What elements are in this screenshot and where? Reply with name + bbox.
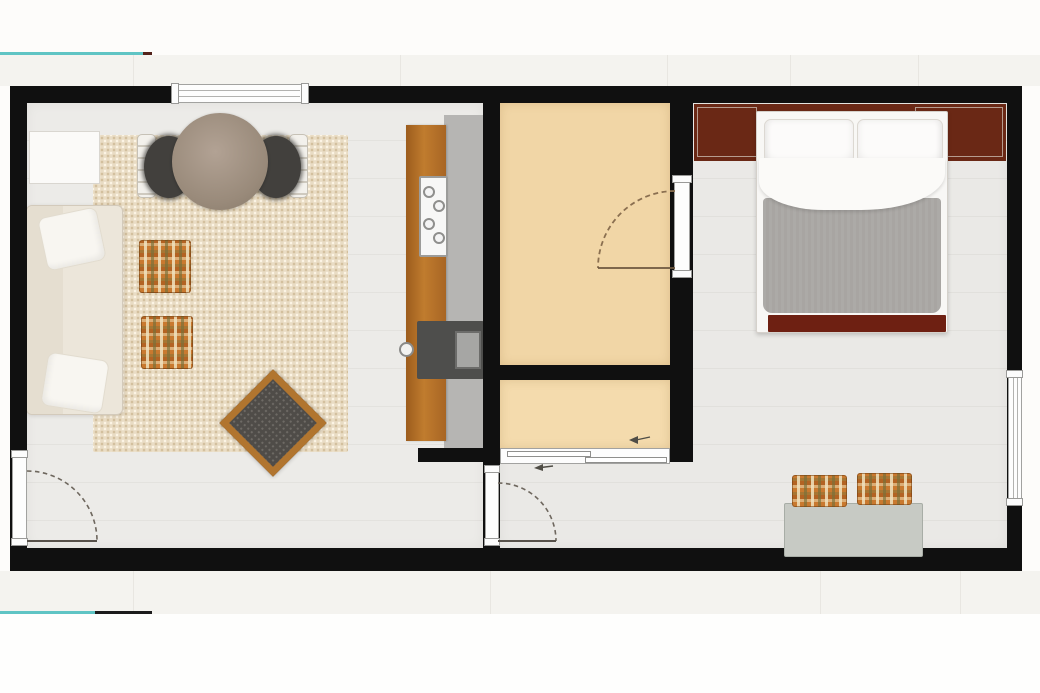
white-cabinet	[29, 131, 100, 184]
exterior-tile-band-bottom	[0, 571, 1040, 614]
burner-icon	[433, 200, 445, 212]
bed-footboard	[768, 315, 946, 332]
teal-accent-line-top-tip	[143, 52, 152, 55]
bed-blanket	[763, 198, 941, 313]
burner-icon	[423, 186, 435, 198]
exterior-tile-band-top	[0, 55, 1040, 86]
stove	[419, 176, 448, 257]
entry-door-frame-left-wall	[12, 453, 27, 545]
wall-top	[10, 86, 1022, 103]
hall-door-frame	[485, 468, 499, 545]
bench-cushion-left	[792, 475, 847, 507]
window-top-cap-right	[301, 83, 309, 104]
kitchen-wood-counter	[406, 125, 446, 441]
burner-icon	[423, 218, 435, 230]
teal-accent-line-bottom-tip	[95, 611, 152, 614]
burner-icon	[433, 232, 445, 244]
window-right-cap-bottom	[1006, 498, 1023, 506]
bathroom-door-frame	[674, 178, 690, 277]
window-right-cap-top	[1006, 370, 1023, 378]
window-top	[176, 84, 303, 103]
ottoman-2	[141, 316, 193, 369]
window-right	[1008, 374, 1022, 502]
dining-table	[172, 113, 268, 210]
teal-accent-line-top	[0, 52, 143, 55]
entry-door-cap-bottom	[11, 538, 28, 546]
entry-door-cap-top	[11, 450, 28, 458]
exterior-bottom-margin	[0, 614, 1040, 693]
wall-bathroom-closet	[483, 365, 693, 380]
bench-cushion-right	[857, 473, 912, 505]
window-top-cap-left	[171, 83, 179, 104]
bathroom-floor	[500, 103, 670, 365]
teal-accent-line-bottom	[0, 611, 95, 614]
sliding-panel-left	[507, 451, 591, 457]
bathroom-door-cap-bottom	[672, 270, 692, 278]
sink-basin	[455, 331, 481, 369]
wall-bathroom-bedroom	[670, 103, 693, 462]
hall-door-cap-bottom	[484, 538, 500, 546]
wardrobe-panel-left	[697, 107, 757, 157]
floor-plan-canvas	[0, 0, 1040, 693]
sliding-panel-right	[585, 457, 667, 463]
bedroom-bench	[784, 503, 923, 557]
bathroom-door-cap-top	[672, 175, 692, 183]
hall-door-cap-top	[484, 465, 500, 473]
ottoman-1	[139, 240, 191, 293]
wall-kitchen-stub	[418, 448, 500, 462]
kitchen-sink	[417, 321, 484, 379]
closet-floor	[500, 380, 670, 449]
faucet	[399, 342, 414, 357]
kitchen-countertop	[444, 115, 484, 448]
sofa-pillow-bottom	[40, 351, 110, 414]
closet-sliding-door	[500, 448, 670, 464]
